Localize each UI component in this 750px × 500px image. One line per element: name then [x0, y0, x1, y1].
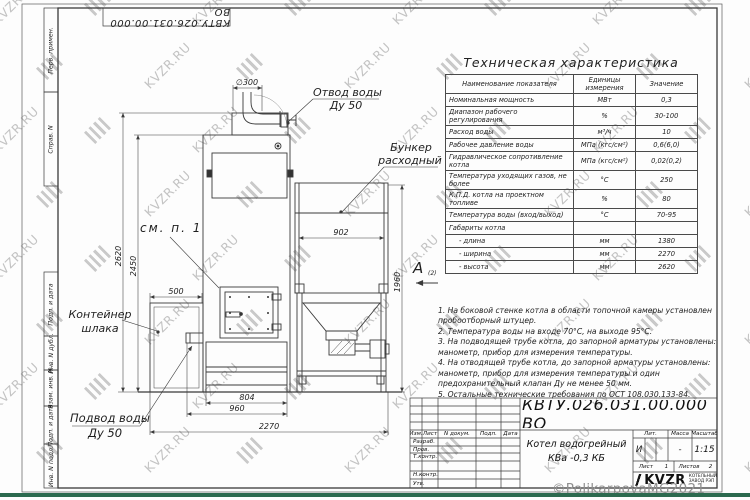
tb-row-tkontr: Т.контр. — [411, 453, 438, 461]
spec-cell: Габариты котла — [446, 222, 574, 235]
spec-cell: МПа (кгс/см²) — [574, 139, 636, 152]
tb-lit-label: Лит. — [633, 430, 668, 438]
dimension-lines — [118, 85, 405, 435]
spec-row: Габариты котла — [446, 222, 698, 235]
note-line: 3. На подводящей трубе котла, до запорно… — [438, 337, 730, 358]
spec-cell: 0,6(6,0) — [636, 139, 698, 152]
spec-cell: °С — [574, 209, 636, 222]
spec-row: Рабочее давление водыМПа (кгс/см²)0,6(6,… — [446, 139, 698, 152]
spec-cell: мм — [574, 235, 636, 248]
spec-cell: мм — [574, 261, 636, 274]
spec-cell: 2620 — [636, 261, 698, 274]
label-see-note-1: см. п. 1 — [140, 221, 202, 235]
spec-cell: 2270 — [636, 248, 698, 261]
dim-d300: ∅300 — [236, 78, 258, 87]
label-bunker-2: расходный — [378, 154, 442, 167]
spec-cell: Диапазон рабочего регулирования — [446, 107, 574, 126]
note-line: 5. Остальные технические требования по О… — [438, 390, 730, 400]
margin-label-inv-podl: Инв. N подл. — [44, 444, 58, 488]
spec-cell: мм — [574, 248, 636, 261]
label-outlet-dn: Ду 50 — [322, 99, 370, 112]
dim-902: 902 — [333, 228, 348, 237]
leader-lines — [72, 99, 438, 426]
spec-cell: 250 — [636, 171, 698, 190]
dim-2620: 2620 — [114, 246, 123, 266]
tb-row-utv: Утв. — [411, 479, 438, 488]
dim-804: 804 — [239, 393, 254, 402]
tb-row-razrab: Разраб. — [411, 438, 438, 446]
spec-cell: Температура уходящих газов, не более — [446, 171, 574, 190]
tb-scale-value: 1:15 — [692, 438, 717, 461]
note-line: 2. Температура воды на входе 70°С, на вы… — [438, 327, 730, 337]
spec-row: - ширинамм2270 — [446, 248, 698, 261]
dim-1960: 1960 — [393, 272, 402, 292]
dim-500: 500 — [168, 287, 183, 296]
spec-cell: К.П.Д. котла на проектном топливе — [446, 190, 574, 209]
spec-cell: - длина — [446, 235, 574, 248]
spec-row: Диапазон рабочего регулирования%30-100 — [446, 107, 698, 126]
spec-col-value: Значение — [636, 75, 698, 94]
note-line: 1. На боковой стенке котла в области топ… — [438, 306, 730, 327]
spec-cell: % — [574, 107, 636, 126]
tb-header-date: Дата — [501, 430, 520, 438]
margin-label-podp-data-2: Подп. и дата — [44, 406, 58, 444]
spec-cell: °С — [574, 171, 636, 190]
dim-2450: 2450 — [129, 256, 138, 276]
spec-cell: % — [574, 190, 636, 209]
spec-cell: 0,3 — [636, 94, 698, 107]
margin-label-vzam-inv: Взам. инв. N — [44, 370, 58, 406]
tb-scale-label: Масштаб — [692, 430, 717, 438]
tb-row-nkontr: Н.контр. — [411, 471, 438, 479]
technical-notes: 1. На боковой стенке котла в области топ… — [438, 306, 730, 400]
label-inlet-dn: Ду 50 — [70, 426, 140, 440]
tb-massa-label: Масса — [668, 430, 692, 438]
titleblock-product-name: Котел водогрейный КВа -0,3 КБ — [522, 432, 631, 472]
tb-header-izm: Изм. — [410, 430, 422, 438]
tb-lit-value: И — [633, 438, 645, 461]
spec-cell: МПа (кгс/см²) — [574, 152, 636, 171]
spec-cell: м³/ч — [574, 126, 636, 139]
spec-cell: - высота — [446, 261, 574, 274]
spec-cell — [636, 222, 698, 235]
spec-cell: Номинальная мощность — [446, 94, 574, 107]
titleblock-doc-number: КВТУ.026.031.00.000 ВО — [522, 400, 715, 428]
spec-row: К.П.Д. котла на проектном топливе%80 — [446, 190, 698, 209]
spec-table-block: Техническая характеристика Наименование … — [445, 55, 697, 274]
dim-960: 960 — [229, 404, 244, 413]
spec-row: - длинамм1380 — [446, 235, 698, 248]
spec-row: Температура воды (вход/выход)°С70-95 — [446, 209, 698, 222]
spec-cell: - ширина — [446, 248, 574, 261]
spec-cell: МВт — [574, 94, 636, 107]
label-outlet-water: Отвод воды — [313, 86, 379, 99]
margin-label-podp-data-1: Подп. и дата — [44, 272, 58, 336]
spec-table-title: Техническая характеристика — [445, 55, 697, 70]
spec-cell: 10 — [636, 126, 698, 139]
tb-massa-value: - — [668, 438, 692, 461]
top-stamp: КВТУ.026.031.00.000 ВО — [103, 8, 230, 26]
top-stamp-docnumber: КВТУ.026.031.00.000 ВО — [103, 6, 230, 28]
tb-sheets-cell: Листов 2 — [674, 461, 717, 472]
spec-cell: 30-100 — [636, 107, 698, 126]
spec-row: - высотамм2620 — [446, 261, 698, 274]
spec-row: Гидравлическое сопротивление котлаМПа (к… — [446, 152, 698, 171]
boiler-drawing — [138, 92, 402, 392]
label-slag-container-2: шлака — [64, 322, 136, 335]
label-slag-container-1: Контейнер — [64, 308, 136, 321]
spec-cell: 80 — [636, 190, 698, 209]
spec-cell: 0,02(0,2) — [636, 152, 698, 171]
spec-cell: Гидравлическое сопротивление котла — [446, 152, 574, 171]
dim-2270: 2270 — [259, 422, 279, 431]
spec-cell: Расход воды — [446, 126, 574, 139]
spec-row: Расход водым³/ч10 — [446, 126, 698, 139]
margin-label-inv-dubl: Инв. N дубл. — [44, 336, 58, 370]
bottom-green-strip — [0, 493, 750, 497]
spec-cell: Рабочее давление воды — [446, 139, 574, 152]
spec-cell: 70-95 — [636, 209, 698, 222]
view-arrow-sheet-ref: (2) — [428, 270, 437, 277]
tb-header-podp: Подп. — [476, 430, 501, 438]
margin-label-perv-primen: Перв. примен. — [44, 8, 58, 92]
spec-col-name: Наименование показателя — [446, 75, 574, 94]
dimension-labels: ∅300 500 804 960 2270 902 2620 2450 1960 — [114, 78, 402, 431]
margin-label-sprav-n: Справ. N — [44, 92, 58, 186]
spec-cell: 1380 — [636, 235, 698, 248]
drawing-sheet: KVZR.RUKVZR.RUKVZR.RUKVZR.RUKVZR.RUKVZR.… — [0, 0, 750, 500]
spec-cell: Температура воды (вход/выход) — [446, 209, 574, 222]
spec-cell — [574, 222, 636, 235]
spec-row: Номинальная мощностьМВт0,3 — [446, 94, 698, 107]
spec-table: Наименование показателя Единицы измерени… — [445, 74, 698, 274]
tb-header-list: Лист — [422, 430, 438, 438]
tb-row-prov: Пров. — [411, 446, 438, 453]
spec-header-row: Наименование показателя Единицы измерени… — [446, 75, 698, 94]
tb-header-ndoc: N докум. — [438, 430, 476, 438]
label-bunker-1: Бункер — [385, 141, 437, 154]
spec-col-units: Единицы измерения — [574, 75, 636, 94]
label-inlet-water: Подвод воды — [70, 411, 140, 425]
tb-sheet-cell: Лист 1 — [633, 461, 674, 472]
note-line: 4. На отводящей трубе котла, до запорной… — [438, 358, 730, 389]
spec-row: Температура уходящих газов, не более°С25… — [446, 171, 698, 190]
view-arrow-label: А — [413, 259, 423, 277]
